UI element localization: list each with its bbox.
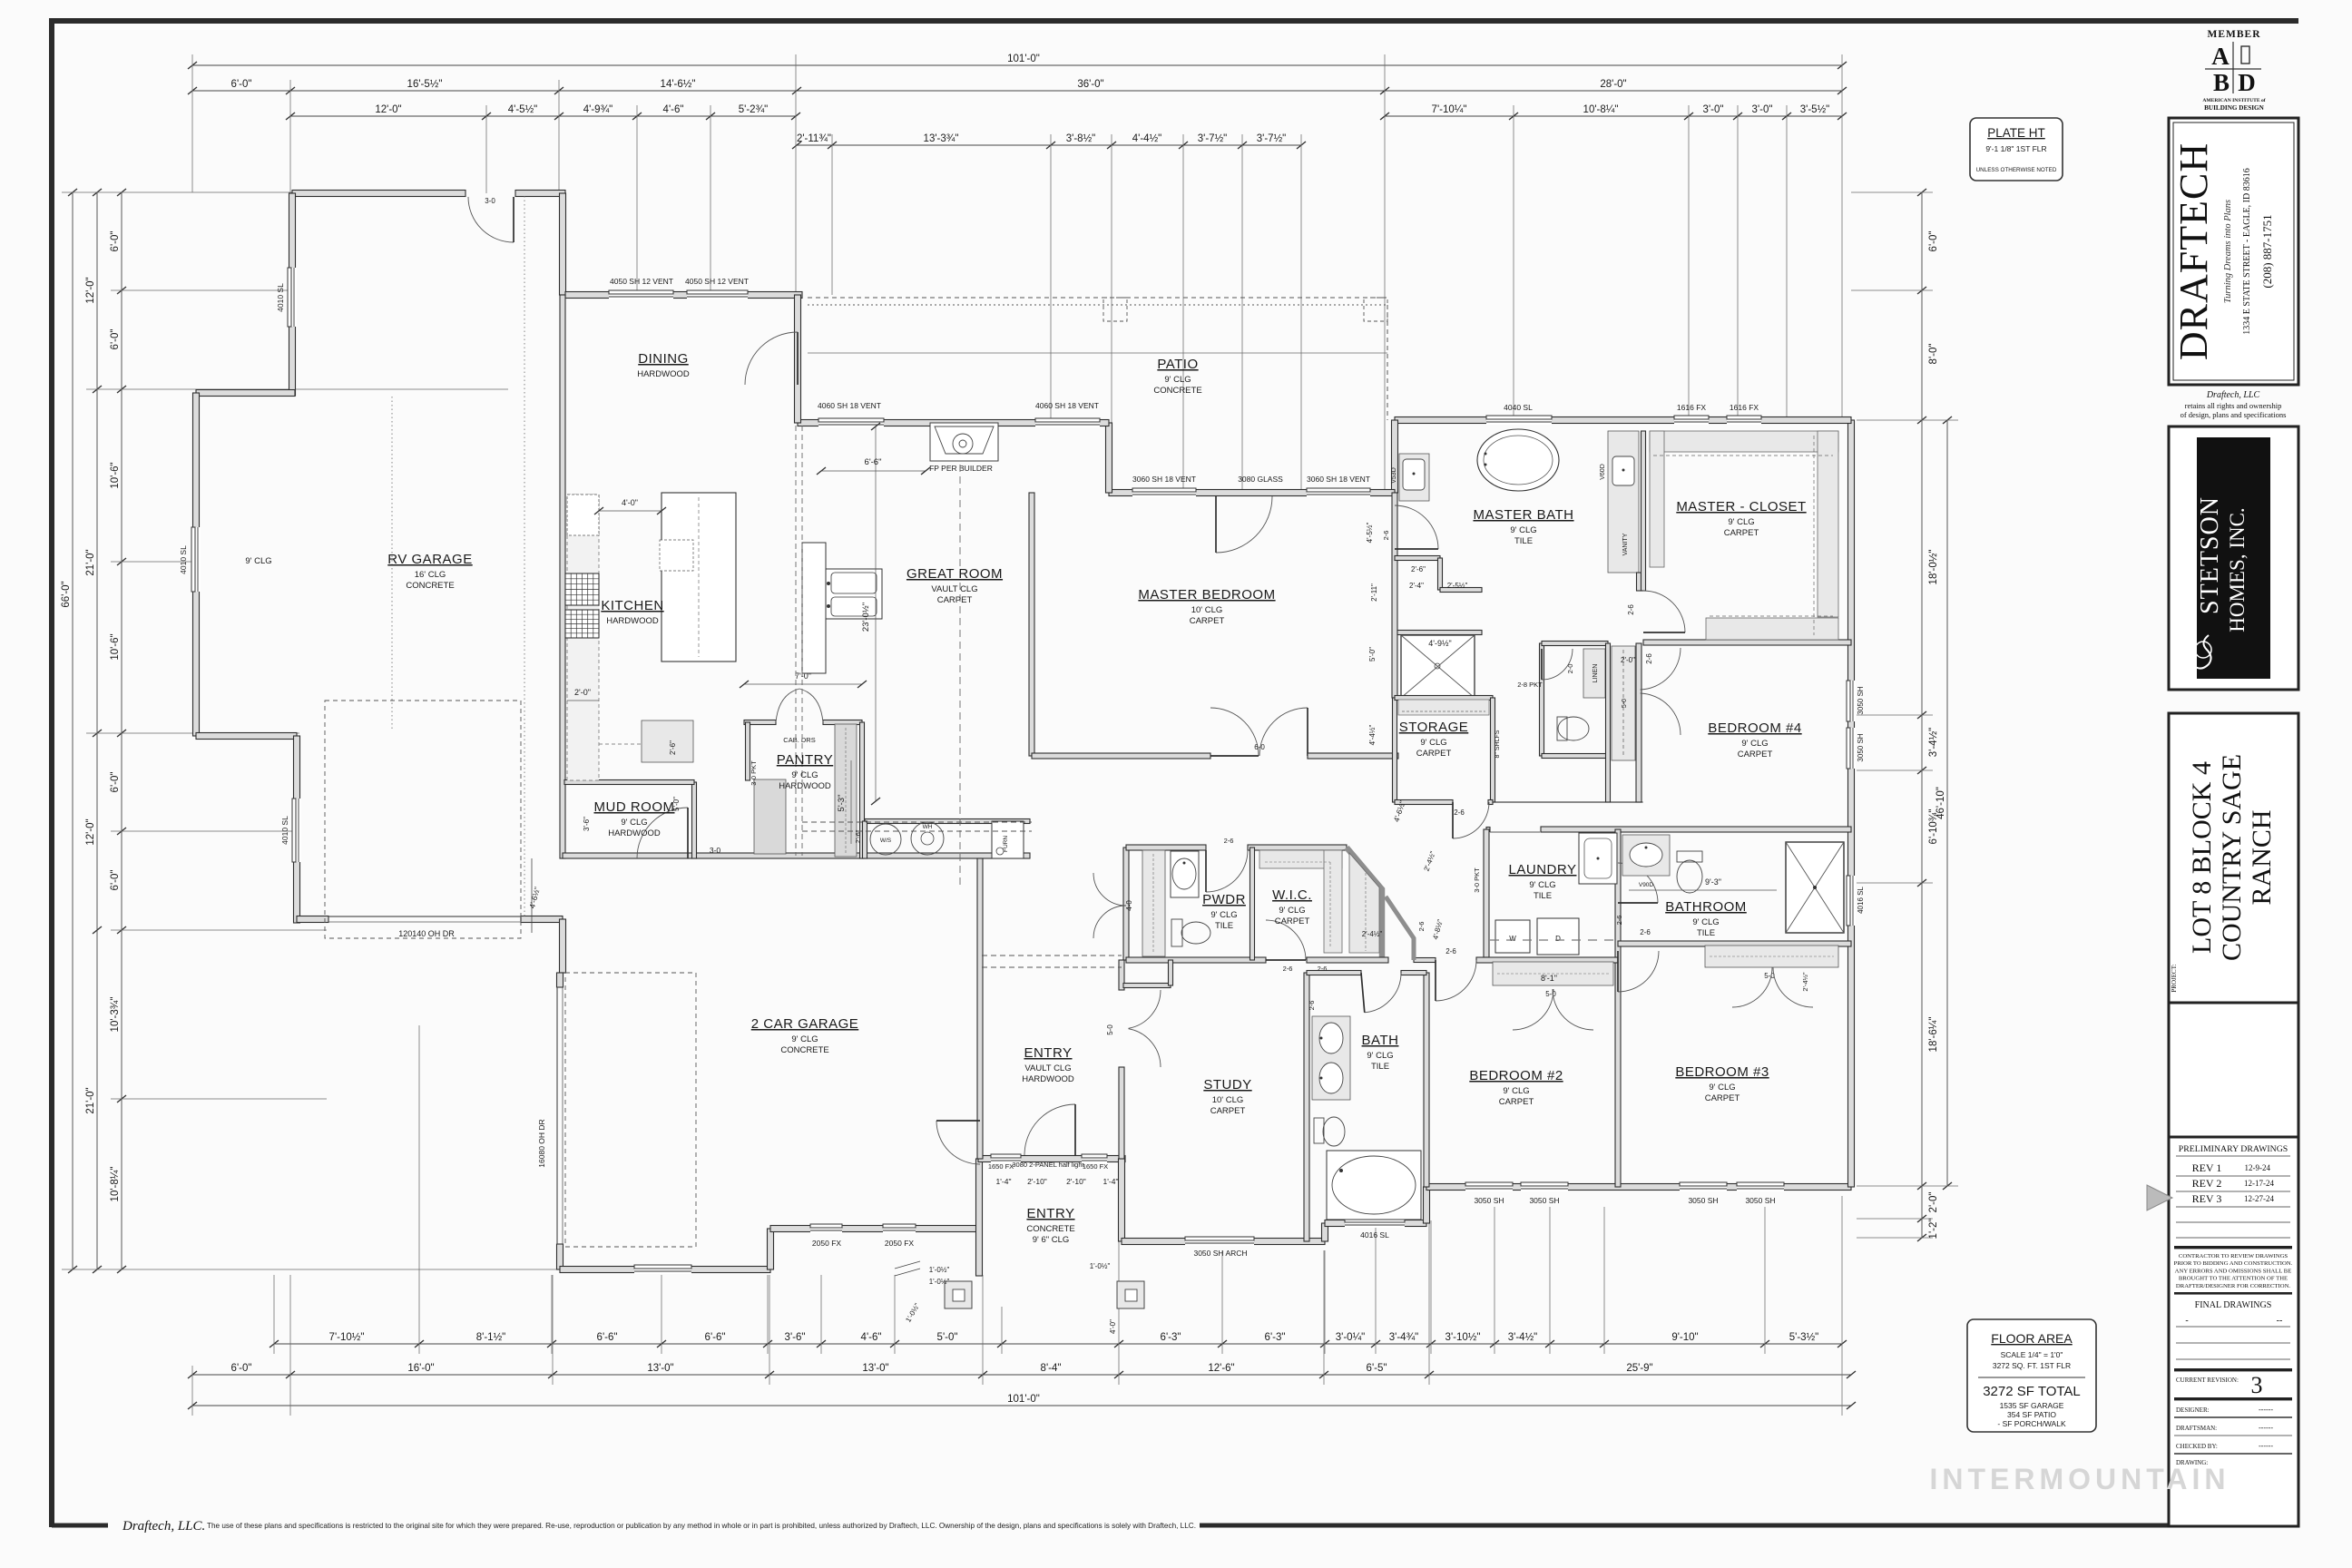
svg-text:HARDWOOD: HARDWOOD: [637, 369, 690, 379]
svg-text:STUDY: STUDY: [1203, 1077, 1251, 1093]
svg-text:A: A: [2211, 43, 2229, 70]
svg-text:14'-6½": 14'-6½": [661, 79, 696, 90]
svg-text:TILE: TILE: [1371, 1062, 1389, 1072]
svg-text:PATIO: PATIO: [1157, 357, 1198, 372]
svg-text:PANTRY: PANTRY: [777, 752, 833, 768]
svg-text:4'-5½": 4'-5½": [1366, 523, 1374, 544]
svg-text:CARPET: CARPET: [1738, 750, 1773, 759]
svg-text:DRAFTECH: DRAFTECH: [2171, 142, 2216, 360]
svg-text:5-0: 5-0: [1545, 990, 1556, 998]
svg-text:MASTER - CLOSET: MASTER - CLOSET: [1676, 499, 1806, 514]
svg-text:2-6: 2-6: [1308, 1001, 1316, 1011]
svg-text:DINING: DINING: [638, 351, 689, 367]
svg-text:KITCHEN: KITCHEN: [601, 598, 663, 613]
svg-text:------: ------: [2259, 1406, 2273, 1414]
svg-text:3-0 PKT: 3-0 PKT: [750, 760, 758, 786]
svg-text:1'-0½": 1'-0½": [1090, 1262, 1111, 1270]
svg-text:CARPET: CARPET: [937, 595, 973, 605]
svg-text:18'-0½": 18'-0½": [1928, 550, 1939, 585]
svg-text:6'-0": 6'-0": [110, 329, 121, 350]
svg-text:21'-0": 21'-0": [85, 1087, 96, 1113]
svg-text:3'-4¾": 3'-4¾": [1389, 1332, 1419, 1343]
svg-text:4'-9½": 4'-9½": [1428, 639, 1451, 648]
svg-text:1'-0½": 1'-0½": [929, 1266, 950, 1274]
svg-text:3'-0": 3'-0": [1752, 104, 1773, 115]
svg-text:CARPET: CARPET: [1724, 528, 1759, 538]
svg-text:5'-2¾": 5'-2¾": [739, 104, 769, 115]
svg-text:9'-10": 9'-10": [1671, 1332, 1698, 1343]
svg-text:3060 SH 18 VENT: 3060 SH 18 VENT: [1307, 475, 1370, 484]
svg-text:2-6: 2-6: [1454, 808, 1465, 817]
svg-text:AMERICAN INSTITUTE of: AMERICAN INSTITUTE of: [2202, 98, 2265, 103]
svg-text:2050 FX: 2050 FX: [885, 1239, 914, 1248]
svg-text:3050 SH: 3050 SH: [1474, 1196, 1504, 1205]
svg-text:8" SHLFS: 8" SHLFS: [1494, 730, 1501, 758]
svg-text:9' CLG: 9' CLG: [1692, 917, 1719, 927]
svg-text:1616 FX: 1616 FX: [1730, 403, 1759, 412]
svg-text:DESIGNER:: DESIGNER:: [2176, 1406, 2210, 1414]
svg-text:3272 SF TOTAL: 3272 SF TOTAL: [1983, 1384, 2081, 1399]
svg-text:9' CLG: 9' CLG: [1367, 1051, 1393, 1061]
svg-text:1'-4": 1'-4": [1103, 1177, 1119, 1186]
svg-text:CARPET: CARPET: [1705, 1093, 1740, 1103]
svg-text:12'-0": 12'-0": [85, 277, 96, 303]
svg-text:1334 E STATE STREET - EAGLE, I: 1334 E STATE STREET - EAGLE, ID 83616: [2242, 168, 2252, 334]
svg-text:5'-0": 5'-0": [937, 1332, 958, 1343]
svg-text:BUILDING DESIGN: BUILDING DESIGN: [2204, 104, 2265, 112]
svg-text:6'-0": 6'-0": [1928, 231, 1939, 252]
svg-text:8'-1½": 8'-1½": [476, 1332, 506, 1343]
svg-text:V60D: V60D: [1600, 464, 1606, 480]
svg-text:2'-11¾": 2'-11¾": [797, 133, 831, 144]
svg-text:CARPET: CARPET: [1275, 916, 1310, 926]
svg-text:MASTER BEDROOM: MASTER BEDROOM: [1138, 587, 1275, 603]
svg-text:CARPET: CARPET: [1190, 616, 1225, 626]
svg-text:3'-4½": 3'-4½": [1508, 1332, 1538, 1343]
svg-text:9' CLG: 9' CLG: [791, 770, 818, 780]
svg-text:4060 SH 18 VENT: 4060 SH 18 VENT: [1035, 401, 1099, 410]
svg-text:BEDROOM #4: BEDROOM #4: [1708, 720, 1801, 736]
svg-text:2-6: 2-6: [1640, 928, 1651, 936]
svg-text:2-6: 2-6: [1382, 531, 1390, 541]
svg-text:BEDROOM #3: BEDROOM #3: [1675, 1064, 1769, 1080]
svg-text:GREAT ROOM: GREAT ROOM: [906, 566, 1003, 582]
svg-text:2'-0": 2'-0": [574, 688, 591, 697]
svg-text:16080 OH DR: 16080 OH DR: [537, 1119, 546, 1167]
svg-text:9' CLG: 9' CLG: [1279, 906, 1305, 916]
svg-text:- SF PORCH/WALK: - SF PORCH/WALK: [1997, 1419, 2066, 1428]
svg-text:TILE: TILE: [1534, 891, 1552, 901]
svg-text:6'-6": 6'-6": [865, 457, 882, 467]
svg-text:3272 SQ. FT. 1ST FLR: 3272 SQ. FT. 1ST FLR: [1993, 1361, 2071, 1370]
svg-text:--: --: [2277, 1316, 2283, 1326]
svg-text:4010 SL: 4010 SL: [280, 816, 289, 845]
svg-text:TILE: TILE: [1697, 928, 1715, 938]
svg-text:12'-6": 12'-6": [1208, 1363, 1234, 1374]
svg-text:6'-3": 6'-3": [1161, 1332, 1181, 1343]
svg-text:PRELIMINARY DRAWINGS: PRELIMINARY DRAWINGS: [2179, 1144, 2288, 1154]
svg-text:LAUNDRY: LAUNDRY: [1509, 862, 1577, 877]
svg-text:6'-0": 6'-0": [110, 231, 121, 252]
svg-text:66'-0": 66'-0": [61, 581, 72, 607]
svg-text:MUD ROOM: MUD ROOM: [594, 799, 675, 815]
svg-text:3080 2-PANEL half light: 3080 2-PANEL half light: [1012, 1161, 1084, 1169]
svg-text:Draftech, LLC: Draftech, LLC: [2206, 390, 2260, 400]
svg-text:3-0: 3-0: [710, 846, 721, 855]
svg-text:4060 SH 18 VENT: 4060 SH 18 VENT: [818, 401, 881, 410]
svg-text:5'-3": 5'-3": [837, 795, 847, 812]
svg-text:V90D: V90D: [1639, 882, 1654, 888]
svg-text:V53D: V53D: [1391, 467, 1397, 484]
svg-text:LOT 8 BLOCK 4: LOT 8 BLOCK 4: [2187, 761, 2217, 954]
svg-text:4'-9¾": 4'-9¾": [583, 104, 613, 115]
svg-text:1'-0½": 1'-0½": [929, 1278, 950, 1286]
svg-text:13'-0": 13'-0": [647, 1363, 673, 1374]
svg-text:CURRENT REVISION:: CURRENT REVISION:: [2176, 1377, 2239, 1384]
svg-text:VAULT CLG: VAULT CLG: [1024, 1063, 1071, 1073]
svg-text:9' CLG: 9' CLG: [1503, 1086, 1529, 1096]
svg-text:4'-0": 4'-0": [1109, 1319, 1117, 1334]
svg-text:CONTRACTOR TO REVIEW DRAWINGS: CONTRACTOR TO REVIEW DRAWINGS: [2179, 1253, 2288, 1259]
svg-text:12-17-24: 12-17-24: [2244, 1179, 2274, 1188]
svg-text:2'-6": 2'-6": [854, 829, 862, 843]
svg-text:3'-5½": 3'-5½": [1800, 104, 1830, 115]
svg-text:3'-4½": 3'-4½": [1928, 728, 1939, 758]
svg-text:BATH: BATH: [1362, 1033, 1399, 1048]
svg-text:12-27-24: 12-27-24: [2244, 1194, 2274, 1203]
svg-text:3-0 PKT: 3-0 PKT: [1473, 867, 1481, 893]
svg-text:12'-0": 12'-0": [85, 818, 96, 845]
svg-text:2-6: 2-6: [1417, 922, 1426, 932]
svg-text:9'-3": 9'-3": [1705, 877, 1721, 887]
svg-text:of design, plans and specifica: of design, plans and specifications: [2180, 410, 2287, 419]
svg-text:4'-6": 4'-6": [663, 104, 684, 115]
svg-text:4010 SL: 4010 SL: [179, 545, 188, 574]
svg-text:2-8 PKT: 2-8 PKT: [1517, 681, 1543, 689]
svg-text:BROUGHT TO THE ATTENTION OF TH: BROUGHT TO THE ATTENTION OF THE: [2179, 1276, 2288, 1282]
svg-text:3'-10½": 3'-10½": [1445, 1332, 1481, 1343]
svg-text:PRIOR TO BIDDING AND CONSTRUCT: PRIOR TO BIDDING AND CONSTRUCTION.: [2174, 1260, 2293, 1267]
svg-text:DRAFTER/DESIGNER FOR CORRECTIO: DRAFTER/DESIGNER FOR CORRECTION.: [2176, 1283, 2290, 1289]
svg-text:retains all rights and ownersh: retains all rights and ownership: [2185, 401, 2282, 410]
svg-text:25'-9": 25'-9": [1626, 1363, 1652, 1374]
svg-text:9' CLG: 9' CLG: [1728, 517, 1754, 527]
svg-text:4016 SL: 4016 SL: [1360, 1230, 1389, 1240]
svg-text:3050 SH: 3050 SH: [1857, 733, 1865, 761]
svg-text:B: B: [2213, 69, 2229, 96]
svg-text:23'-0½": 23'-0½": [861, 603, 871, 632]
svg-text:6'-6": 6'-6": [705, 1332, 726, 1343]
svg-text:RV GARAGE: RV GARAGE: [387, 552, 472, 567]
svg-text:CONCRETE: CONCRETE: [1153, 386, 1201, 396]
svg-text:3050 SH: 3050 SH: [1688, 1196, 1718, 1205]
svg-text:2'-11": 2'-11": [1370, 583, 1378, 602]
svg-text:2-6: 2-6: [1627, 604, 1635, 615]
svg-text:6'-0": 6'-0": [231, 79, 252, 90]
svg-text:7'-10¼": 7'-10¼": [1432, 104, 1467, 115]
svg-text:MEMBER: MEMBER: [2207, 29, 2260, 40]
svg-text:9' CLG: 9' CLG: [1164, 375, 1191, 385]
svg-text:9' CLG: 9' CLG: [621, 818, 647, 828]
svg-text:1'-2": 1'-2": [1928, 1219, 1939, 1240]
svg-text:4'-4½": 4'-4½": [1368, 725, 1377, 746]
svg-text:2 CAR GARAGE: 2 CAR GARAGE: [751, 1016, 859, 1032]
svg-text:MASTER BATH: MASTER BATH: [1473, 507, 1573, 523]
svg-text:CARPET: CARPET: [1416, 749, 1452, 759]
svg-text:3'-0¼": 3'-0¼": [1336, 1332, 1366, 1343]
svg-text:Turning Dreams into Plans: Turning Dreams into Plans: [2223, 200, 2233, 303]
svg-text:6'-3": 6'-3": [1265, 1332, 1286, 1343]
svg-text:UNLESS OTHERWISE NOTED: UNLESS OTHERWISE NOTED: [1976, 167, 2057, 173]
svg-text:8'-1": 8'-1": [1541, 974, 1557, 983]
svg-text:3050 SH: 3050 SH: [1857, 686, 1865, 714]
svg-text:3'-0": 3'-0": [1703, 104, 1724, 115]
svg-text:2-6: 2-6: [1445, 947, 1456, 955]
svg-text:W.I.C.: W.I.C.: [1272, 887, 1312, 903]
svg-text:------: ------: [2259, 1424, 2273, 1432]
svg-text:FP PER BUILDER: FP PER BUILDER: [929, 464, 993, 473]
svg-text:2'-10": 2'-10": [1027, 1177, 1047, 1186]
svg-text:3'-6": 3'-6": [583, 817, 591, 831]
svg-text:INTERMOUNTAIN: INTERMOUNTAIN: [1929, 1463, 2229, 1495]
svg-text:10'-8¼": 10'-8¼": [110, 1167, 121, 1202]
svg-text:9' 6" CLG: 9' 6" CLG: [1033, 1235, 1070, 1245]
svg-text:FURN: FURN: [1003, 836, 1009, 852]
svg-text:2'-6": 2'-6": [669, 740, 677, 755]
svg-text:2'-5½": 2'-5½": [1447, 582, 1468, 590]
svg-text:(208) 887-1751: (208) 887-1751: [2260, 214, 2274, 288]
svg-text:4'-5½": 4'-5½": [508, 104, 538, 115]
svg-text:28'-0": 28'-0": [1600, 79, 1626, 90]
svg-text:BEDROOM #2: BEDROOM #2: [1469, 1068, 1563, 1083]
svg-text:4-0: 4-0: [1125, 900, 1133, 911]
svg-text:VAULT CLG: VAULT CLG: [931, 584, 977, 594]
svg-text:36'-0": 36'-0": [1077, 79, 1103, 90]
svg-text:3'-6": 3'-6": [785, 1332, 806, 1343]
svg-text:8'-0": 8'-0": [1928, 344, 1939, 365]
svg-text:4'-0": 4'-0": [622, 498, 638, 507]
svg-text:CONCRETE: CONCRETE: [1026, 1224, 1074, 1234]
svg-text:10'-8¼": 10'-8¼": [1583, 104, 1619, 115]
svg-text:9' CLG: 9' CLG: [1420, 738, 1446, 748]
svg-text:2'-0": 2'-0": [1928, 1192, 1939, 1213]
svg-text:FINAL DRAWINGS: FINAL DRAWINGS: [2195, 1300, 2272, 1310]
svg-text:16' CLG: 16' CLG: [415, 570, 446, 580]
svg-text:CARPET: CARPET: [1210, 1106, 1246, 1116]
svg-text:120140 OH DR: 120140 OH DR: [398, 929, 455, 938]
svg-text:18'-6¼": 18'-6¼": [1928, 1017, 1939, 1053]
svg-text:2'-0": 2'-0": [1621, 656, 1635, 664]
svg-text:12'-0": 12'-0": [375, 104, 401, 115]
svg-text:5-0: 5-0: [1106, 1024, 1114, 1035]
svg-text:ENTRY: ENTRY: [1024, 1045, 1072, 1061]
svg-text:13'-3¾": 13'-3¾": [924, 133, 959, 144]
svg-text:3060 SH 18 VENT: 3060 SH 18 VENT: [1132, 475, 1196, 484]
svg-text:2'-6": 2'-6": [1411, 565, 1426, 573]
svg-text:4010 SL: 4010 SL: [276, 283, 285, 312]
svg-text:HARDWOOD: HARDWOOD: [606, 616, 659, 626]
svg-text:The use of these plans and spe: The use of these plans and specification…: [207, 1522, 1196, 1530]
svg-text:7'-10½": 7'-10½": [329, 1332, 365, 1343]
svg-text:4016 SL: 4016 SL: [1857, 887, 1865, 914]
svg-text:21'-0": 21'-0": [85, 549, 96, 575]
svg-text:------: ------: [2259, 1442, 2273, 1450]
svg-text:6'-0": 6'-0": [110, 772, 121, 793]
svg-text:RANCH: RANCH: [2247, 809, 2277, 905]
svg-text:COUNTRY SAGE: COUNTRY SAGE: [2217, 754, 2247, 961]
svg-text:SCALE 1/4" = 1'0": SCALE 1/4" = 1'0": [2001, 1350, 2063, 1359]
svg-text:HARDWOOD: HARDWOOD: [779, 781, 831, 791]
svg-text:3050 SH ARCH: 3050 SH ARCH: [1193, 1249, 1247, 1258]
svg-text:3050 SH: 3050 SH: [1745, 1196, 1775, 1205]
svg-text:101'-0": 101'-0": [1007, 1394, 1040, 1405]
svg-text:4050 SH 12 VENT: 4050 SH 12 VENT: [610, 277, 673, 286]
svg-text:10' CLG: 10' CLG: [1191, 605, 1223, 615]
svg-text:10'-6": 10'-6": [110, 462, 121, 488]
svg-text:9' CLG: 9' CLG: [1741, 739, 1768, 749]
svg-text:-: -: [2185, 1316, 2188, 1326]
svg-text:13'-0": 13'-0": [862, 1363, 888, 1374]
svg-text:REV 2: REV 2: [2192, 1177, 2222, 1190]
svg-text:2'-4½": 2'-4½": [1801, 972, 1809, 992]
svg-text:10'-3¾": 10'-3¾": [110, 997, 121, 1033]
svg-text:TILE: TILE: [1514, 536, 1533, 546]
svg-text:PLATE HT: PLATE HT: [1987, 126, 2045, 140]
svg-text:STORAGE: STORAGE: [1399, 720, 1469, 735]
svg-text:3'-7½": 3'-7½": [1198, 133, 1228, 144]
svg-text:CHECKED BY:: CHECKED BY:: [2176, 1443, 2218, 1450]
svg-text:2-6: 2-6: [1615, 916, 1623, 926]
svg-text:3'-7½": 3'-7½": [1257, 133, 1287, 144]
svg-text:BATHROOM: BATHROOM: [1665, 899, 1747, 915]
svg-text:CONCRETE: CONCRETE: [406, 581, 454, 591]
svg-text:2-6: 2-6: [1645, 653, 1653, 664]
svg-text:CONCRETE: CONCRETE: [780, 1045, 828, 1055]
svg-text:10' CLG: 10' CLG: [1212, 1095, 1244, 1105]
svg-text:6'-0": 6'-0": [110, 870, 121, 891]
svg-text:4040 SL: 4040 SL: [1504, 403, 1533, 412]
svg-text:8'-4": 8'-4": [1041, 1363, 1062, 1374]
svg-text:3'-8½": 3'-8½": [1066, 133, 1096, 144]
svg-text:9' CLG: 9' CLG: [245, 556, 271, 566]
svg-text:46'-10": 46'-10": [1935, 787, 1946, 819]
svg-text:5'-3½": 5'-3½": [1789, 1332, 1819, 1343]
svg-text:3050 SH: 3050 SH: [1529, 1196, 1559, 1205]
svg-text:Draftech, LLC.: Draftech, LLC.: [122, 1519, 205, 1534]
svg-text:ENTRY: ENTRY: [1026, 1206, 1074, 1221]
svg-text:W/S: W/S: [880, 838, 892, 844]
svg-text:354 SF PATIO: 354 SF PATIO: [2007, 1410, 2056, 1419]
svg-text:D: D: [1555, 935, 1561, 943]
svg-text:1535 SF GARAGE: 1535 SF GARAGE: [2000, 1401, 2064, 1410]
svg-text:1616 FX: 1616 FX: [1677, 403, 1706, 412]
svg-text:TILE: TILE: [1215, 921, 1233, 931]
svg-text:9' CLG: 9' CLG: [1529, 880, 1555, 890]
svg-text:VANITY: VANITY: [1622, 533, 1629, 555]
svg-text:2-0: 2-0: [1566, 664, 1574, 674]
svg-text:101'-0": 101'-0": [1007, 54, 1040, 64]
svg-text:2'-4½": 2'-4½": [1362, 930, 1383, 938]
svg-text:9' CLG: 9' CLG: [1709, 1083, 1735, 1093]
svg-text:9'-1 1/8" 1ST FLR: 9'-1 1/8" 1ST FLR: [1985, 144, 2046, 153]
svg-text:3: 3: [2251, 1372, 2263, 1398]
svg-text:5'-0": 5'-0": [1368, 647, 1377, 661]
svg-text:ANY ERRORS AND OMISSIONS SHALL: ANY ERRORS AND OMISSIONS SHALL BE: [2175, 1268, 2292, 1274]
svg-text:5-0: 5-0: [1622, 699, 1628, 708]
svg-text:PWDR: PWDR: [1202, 892, 1246, 907]
svg-text:3-0: 3-0: [485, 197, 495, 205]
svg-text:6'-6": 6'-6": [597, 1332, 618, 1343]
svg-text:2'-4": 2'-4": [1409, 582, 1424, 590]
svg-text:CAB. DRS: CAB. DRS: [783, 736, 815, 744]
svg-text:1650 FX: 1650 FX: [988, 1162, 1014, 1171]
svg-text:REV 1: REV 1: [2192, 1161, 2222, 1174]
svg-text:16'-0": 16'-0": [407, 1363, 434, 1374]
svg-text:W: W: [1509, 935, 1516, 943]
svg-text:10'-6": 10'-6": [110, 633, 121, 660]
svg-text:HARDWOOD: HARDWOOD: [1022, 1074, 1074, 1084]
svg-text:12-9-24: 12-9-24: [2245, 1163, 2271, 1172]
svg-text:3080 GLASS: 3080 GLASS: [1238, 475, 1283, 484]
svg-text:WH: WH: [923, 824, 933, 830]
svg-text:STETSON: STETSON: [2196, 496, 2224, 614]
svg-text:1650 FX: 1650 FX: [1083, 1162, 1108, 1171]
svg-text:9' CLG: 9' CLG: [1510, 525, 1536, 535]
svg-text:D: D: [2238, 69, 2256, 96]
svg-text:6'-5": 6'-5": [1367, 1363, 1387, 1374]
svg-text:4050 SH 12 VENT: 4050 SH 12 VENT: [685, 277, 749, 286]
svg-text:2'-10": 2'-10": [1066, 1177, 1086, 1186]
svg-text:HOMES, INC.: HOMES, INC.: [2226, 507, 2249, 632]
svg-text:9' CLG: 9' CLG: [1210, 910, 1237, 920]
svg-text:2-6: 2-6: [1224, 837, 1234, 845]
svg-text:FLOOR AREA: FLOOR AREA: [1991, 1331, 2073, 1346]
svg-text:2-6: 2-6: [1283, 965, 1293, 973]
svg-text:6-0: 6-0: [1254, 743, 1265, 751]
svg-text:16'-5½": 16'-5½": [407, 79, 443, 90]
svg-text:2050 FX: 2050 FX: [812, 1239, 841, 1248]
svg-text:1'-4": 1'-4": [996, 1177, 1012, 1186]
svg-text:REV 3: REV 3: [2192, 1192, 2222, 1205]
svg-text:4'-4½": 4'-4½": [1132, 133, 1162, 144]
svg-text:CARPET: CARPET: [1499, 1097, 1534, 1107]
svg-text:9' CLG: 9' CLG: [791, 1034, 818, 1044]
svg-text:LINEN: LINEN: [1592, 664, 1599, 683]
svg-text:4'-6": 4'-6": [861, 1332, 882, 1343]
svg-text:6'-0": 6'-0": [231, 1363, 252, 1374]
svg-text:HARDWOOD: HARDWOOD: [608, 828, 661, 838]
svg-text:PROJECT:: PROJECT:: [2171, 964, 2178, 992]
svg-text:DRAFTSMAN:: DRAFTSMAN:: [2176, 1425, 2217, 1432]
